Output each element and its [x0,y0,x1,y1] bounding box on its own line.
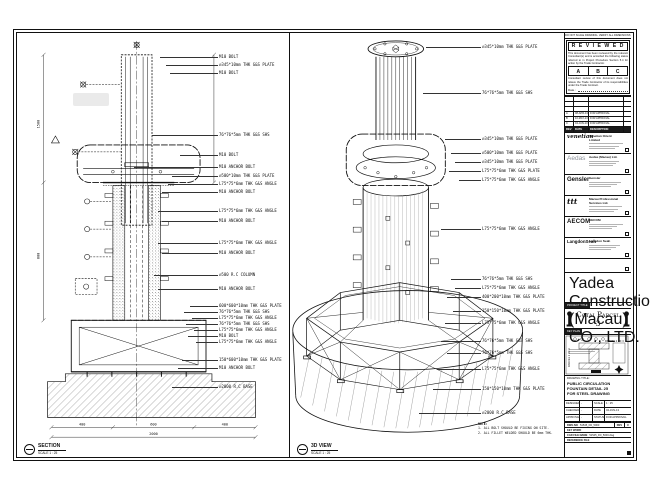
drawing-title-line: FOR STEEL DRAWING [567,391,629,396]
leader-label: ⌀2000 R.C BASE [482,411,516,415]
note-line: 2. ALL FILLET WELDED SHOULD BE 6mm THK. [478,431,560,435]
langdonseah-logo: LangdonSeah [567,240,587,257]
date-line [578,88,628,92]
consultant-name: Langdon Seah [589,240,623,244]
project-title-tag: PROJECT TITLE [565,303,590,308]
detail-marker-icon [24,444,35,455]
leader-label: L75*75*6mm THK G&S ANGLE [219,209,277,213]
consultant-row-empty [565,259,631,273]
leader-label: L75*75*6mm THK G&S ANGLE [219,316,277,320]
parcel-label: PARCEL 2 OF 3 [605,339,624,343]
view-title: 3D VIEW [311,444,338,451]
sheet-border-inner: 1500 800 400 600 400 2000 M10 BOLT ⌀345*… [16,32,634,458]
status-box-a: A [569,67,589,75]
meta-value: 1 : 25 [605,401,631,408]
keyplan-tag: KEY PLAN [565,329,582,334]
date-label: Date : [568,89,576,93]
leader-label: L75*75*6mm THK G&S ANGLE [482,286,540,290]
consultant-row: AECOM AECOM [565,217,631,238]
dimension-text: 800 [37,253,41,259]
rev-label: REV [614,423,624,427]
leader-label: 150*150*10mm THK G&S PLATE [482,387,545,391]
leader-label: M10 BOLT [219,334,238,338]
meta-value: - [580,415,593,422]
review-checkbox [625,211,629,215]
review-checkbox [625,267,629,271]
iso-view-panel: ⌀345*10mm THK G&S PLATE 76*76*5mm THK G&… [290,33,565,457]
meta-value: - [580,408,593,415]
leader-label: L75*75*6mm THK G&S ANGLE [482,178,540,182]
leader-label: M10 ANCHOR BOLT [219,165,255,169]
rev-header: REV [565,126,574,132]
ornament-icon [566,311,573,327]
rev-value: C [624,423,631,427]
leader-label: M10 ANCHOR BOLT [219,366,255,370]
iso-drawing [290,33,564,457]
gensler-logo: Gensler [567,177,587,194]
consultant-name: AECOM [589,219,623,223]
leader-label: M10 BOLT [219,71,238,75]
drawing-sheet: 1500 800 400 600 400 2000 M10 BOLT ⌀345*… [0,0,650,488]
address-lines [589,245,623,250]
review-checkbox [625,169,629,173]
detail-marker-icon [297,444,308,455]
consultant-row: Gensler Gensler [565,175,631,196]
sheet-border: 1500 800 400 600 400 2000 M10 BOLT ⌀345*… [13,29,637,461]
address-lines [589,224,623,229]
leader-label: L75*75*6mm THK G&S ANGLE [219,328,277,332]
dimension-text: 600 [150,422,156,426]
cad-file-value: 51545_FD_5000.dwg [589,433,631,437]
leader-label: L75*75*6mm THK G&S ANGLE [219,340,277,344]
fluted-column [353,179,438,323]
leader-label: 76*76*5mm THK G&S SHS [482,277,533,281]
reviewed-heading: R E V I E W E D [568,42,628,51]
parcel-label: PARCEL 1 OF 3 [567,348,571,367]
leader-label: ⌀2000 R.C BASE [219,385,253,389]
consultant-name: Macau Professional Services Ltd. [589,198,623,205]
aedas-logo: Aedas [567,156,587,173]
meta-label: CHECKED [565,408,580,415]
project-name: Cotai Parcel 3 [573,310,623,328]
top-plate [368,41,423,57]
consultant-row: venetian Venetian Orient Limited [565,133,631,154]
meta-label: STATUS [593,415,605,422]
keyword-value [583,428,631,432]
leader-label: 76*76*5mm THK G&S SHS [482,91,533,95]
leader-label: 76*76*5mm THK G&S SHS [219,133,270,137]
contractor-block: Yadea Construction (Macau) CO., LTD. [565,273,631,303]
reference-file-label: REFERENCE FILE [565,438,591,442]
meta-value: FOR APPROVAL [605,415,631,422]
consultant-name: Gensler [589,177,623,181]
address-lines [589,182,623,187]
project-title-band: Cotai Parcel 3 [565,309,631,329]
leader-label: L75*75*6mm THK G&S ANGLE [219,182,277,186]
general-notes: NOTE: 1. ALL BOLT SHOULD BE FIXING ON SI… [478,422,560,435]
leader-label: 76*76*5mm THK G&S SHS [219,322,270,326]
base-plate [103,183,174,186]
collar-cloud [346,134,445,186]
meta-table: DESIGNED - SCALE 1 : 25 CHECKED - DATE 0… [565,401,631,423]
view-title: SECTION [38,444,66,451]
leader-label: ⌀345*10mm THK G&S PLATE [482,137,537,141]
faint-stamp [73,93,109,106]
leader-label: ⌀345*10mm THK G&S PLATE [482,45,537,49]
leader-label: 76*76*5mm THK G&S SHS [482,339,533,343]
leader-label: M10 ANCHOR BOLT [219,287,255,291]
review-checkbox [625,190,629,194]
view-scale: SCALE 1 : 25 [38,451,66,455]
address-lines [589,161,623,166]
leader-label: L75*75*6mm THK G&S ANGLE [482,321,540,325]
reviewed-paragraph: Consultant review of this document does … [568,77,628,87]
leader-label: ⌀500*10mm THK G&S PLATE [482,151,537,155]
aecom-logo: AECOM [567,219,587,236]
dimension-text: 2000 [149,432,158,436]
status-boxes: A B C [568,66,628,76]
leader-label: M10 ANCHOR BOLT [219,190,255,194]
leader-label: L75*75*6mm THK G&S ANGLE [219,241,277,245]
octagonal-frame [304,283,496,393]
iso-view-title: 3D VIEW SCALE 1 : 25 [295,444,340,455]
address-lines [589,206,623,211]
leader-label: ⌀345*10mm THK G&S PLATE [219,63,274,67]
view-scale: SCALE 1 : 25 [311,451,338,455]
title-block: DO NOT SCALE DRAWING. VERIFY ALL DIMENSI… [565,33,631,457]
meta-label: DATE [593,408,605,415]
review-stamp: R E V I E W E D This document has been r… [565,39,631,96]
mps-logo: ttt [567,198,587,215]
dimension-text: 400 [79,422,85,426]
leader-label: L75*75*6mm THK G&S PLATE [482,169,540,173]
rev-header: DATE [574,126,589,132]
meta-label: APPROVED [565,415,580,422]
address-lines [589,143,623,148]
leader-label: 400*200*10mm THK G&S PLATE [482,295,545,299]
dwg-no-value: 51545_FD_5000 [580,423,614,427]
status-box-b: B [589,67,609,75]
cad-file-label: CAD FILE NAME [565,433,589,437]
key-plan: PARCEL 1 OF 3 PARCEL 2 OF 3 [565,335,631,376]
leader-label: 150*600*10mm THK G&S PLATE [219,358,282,362]
keyword-label: KEY WORD [565,428,583,432]
dimension-text: 400 [222,422,228,426]
consultant-row: LangdonSeah Langdon Seah [565,238,631,259]
consultant-name: Aedas (Macau) Ltd. [589,156,623,160]
leader-label: L75*75*6mm THK G&S ANGLE [482,227,540,231]
contractor-checkbox [627,451,631,455]
rev-header: DESCRIPTION [589,126,624,132]
leader-label: ⌀500 R.C COLUMN [219,273,255,277]
dimension-text: 1500 [37,120,41,129]
leader-label: 76*76*5mm THK G&S SHS [482,351,533,355]
leader-label: 150*150*10mm THK G&S PLATE [482,309,545,313]
revision-triangle [51,136,59,143]
section-view-title: SECTION SCALE 1 : 25 [22,444,68,455]
review-checkbox [625,253,629,257]
review-checkbox [625,148,629,152]
consultant-name: Venetian Orient Limited [589,135,623,142]
leader-label: ⌀500*10mm THK G&S PLATE [219,174,274,178]
reviewed-paragraph: This document has been reviewed by the r… [568,52,628,66]
leader-label: M10 BOLT [219,55,238,59]
tube-bundle [376,57,416,140]
consultant-row: Aedas Aedas (Macau) Ltd. [565,154,631,175]
meta-value: - [580,401,593,408]
foundation [47,374,255,418]
leader-label: M10 ANCHOR BOLT [219,219,255,223]
drawing-title-cell: DRAWING TITLE: PUBLIC CIRCULATION FOUNTA… [565,376,631,401]
meta-label: DESIGNED [565,401,580,408]
consultant-row: ttt Macau Professional Services Ltd. [565,196,631,217]
leader-label: L75*75*6mm THK G&S ANGLE [482,367,540,371]
dwg-no-label: DWG NO [565,423,580,427]
key-plan-drawing: PARCEL 1 OF 3 PARCEL 2 OF 3 [565,335,629,375]
meta-value: 04-JUN-13 [605,408,631,415]
review-checkbox [625,232,629,236]
venetian-logo: venetian [567,135,587,152]
meta-label: SCALE [593,401,605,408]
section-view-panel: 1500 800 400 600 400 2000 M10 BOLT ⌀345*… [17,33,290,457]
reference-file-value [591,438,631,442]
leader-label: M10 ANCHOR BOLT [219,251,255,255]
status-box-c: C [608,67,627,75]
leader-label: 76*76*5mm THK G&S SHS [219,310,270,314]
revision-table: A 08-APR-13 FOR APPROVAL B 10-MAY-13 FOR… [565,96,631,133]
ornament-icon [623,311,630,327]
leader-label: ⌀345*10mm THK G&S PLATE [482,160,537,164]
shaft [121,55,152,225]
leader-label: 600*600*10mm THK G&S PLATE [219,304,282,308]
leader-label: M10 BOLT [219,153,238,157]
